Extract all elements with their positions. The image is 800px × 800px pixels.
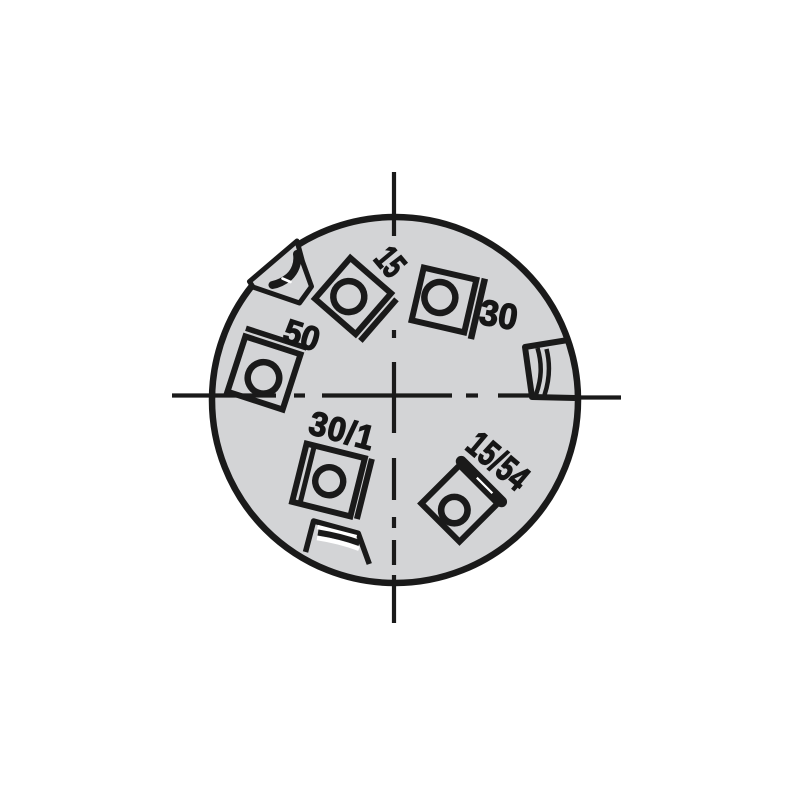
svg-text:30: 30 bbox=[476, 292, 520, 338]
